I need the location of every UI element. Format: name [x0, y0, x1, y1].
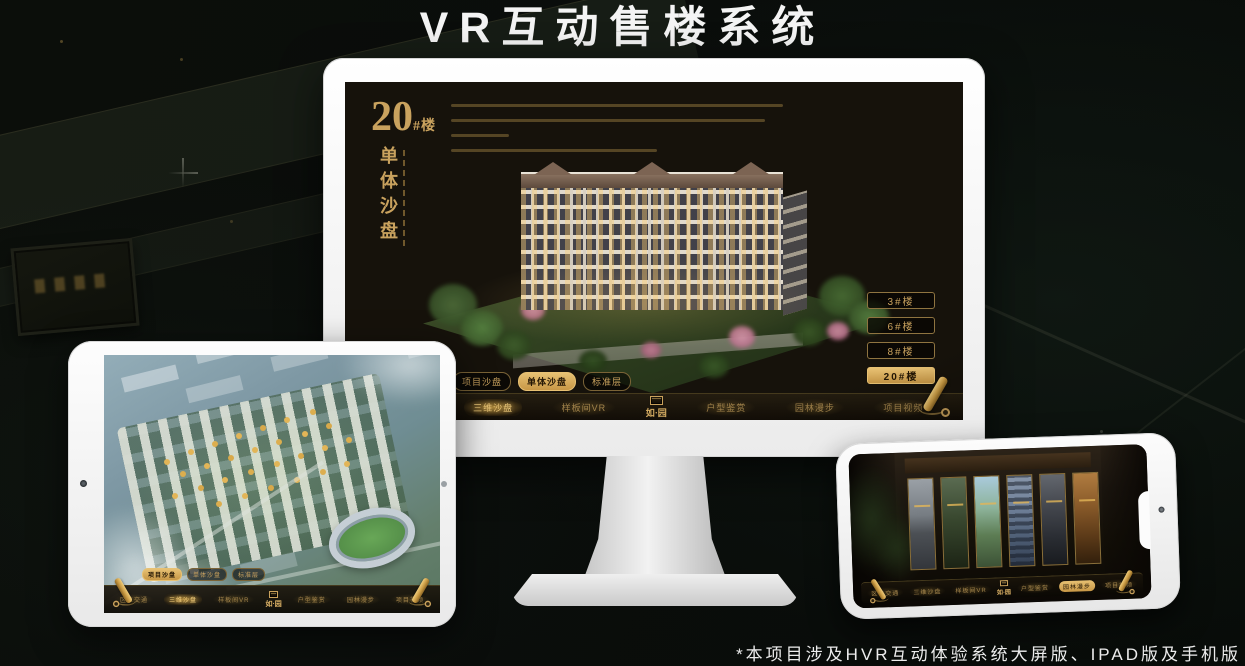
scroll-icon[interactable]	[919, 373, 953, 419]
scroll-icon[interactable]	[409, 575, 433, 608]
nav-item-3d-sandbox[interactable]: 三维沙盘	[909, 585, 945, 597]
footnote-text: *本项目涉及HVR互动体验系统大屏版、IPAD版及手机版	[736, 640, 1241, 665]
tab-standard-floor[interactable]: 标准层	[232, 568, 265, 581]
tree	[699, 354, 729, 378]
scroll-icon[interactable]	[867, 576, 888, 604]
mode-tabs: 项目沙盘 单体沙盘 标准层	[453, 372, 631, 391]
description-text-line	[451, 119, 765, 122]
phone-notch	[1138, 491, 1151, 549]
nav-item-unit-plans[interactable]: 户型鉴赏	[697, 399, 755, 416]
nav-item-showroom-vr[interactable]: 样板间VR	[213, 594, 254, 605]
tab-project-sandbox[interactable]: 项目沙盘	[142, 568, 182, 581]
block-number-suffix: #楼	[413, 119, 436, 134]
phone-device: 区位交通 三维沙盘 样板间VR 如·园 户型鉴赏 园林漫步 项目视频	[835, 432, 1181, 620]
block-number-text: 20	[371, 94, 413, 140]
tab-project-sandbox[interactable]: 项目沙盘	[453, 372, 511, 391]
nav-item-unit-plans[interactable]: 户型鉴赏	[293, 594, 331, 605]
tree	[579, 350, 607, 372]
building-number-markers[interactable]	[164, 459, 170, 465]
tab-standard-floor[interactable]: 标准层	[583, 372, 631, 391]
tree	[497, 330, 531, 360]
gallery-panel[interactable]	[973, 475, 1002, 568]
flower-shrub	[729, 326, 755, 348]
tablet-device: 项目沙盘 单体沙盘 标准层 区位交通 三维沙盘 样板间VR 如·园 户型鉴赏 园…	[68, 341, 456, 627]
logo-emblem-icon	[1000, 580, 1008, 586]
scroll-icon[interactable]	[1115, 568, 1136, 596]
floor-button-6[interactable]: 6#楼	[867, 317, 935, 334]
nav-item-3d-sandbox[interactable]: 三维沙盘	[464, 399, 522, 416]
scroll-icon[interactable]	[111, 575, 135, 608]
building-end-face	[783, 191, 807, 316]
gallery-panel[interactable]	[1006, 474, 1035, 567]
tab-single-sandbox[interactable]: 单体沙盘	[518, 372, 576, 391]
compass-star-icon	[168, 158, 198, 188]
nav-item-garden-walk[interactable]: 园林漫步	[786, 399, 844, 416]
nav-item-garden-walk[interactable]: 园林漫步	[1059, 580, 1095, 592]
gallery-panel[interactable]	[907, 478, 936, 571]
award-plaque	[10, 238, 139, 336]
brand-logo: 如·园	[997, 580, 1012, 596]
nav-item-showroom-vr[interactable]: 样板间VR	[951, 583, 991, 595]
logo-text: 如·园	[265, 599, 281, 609]
nav-item-showroom-vr[interactable]: 样板间VR	[553, 399, 616, 416]
gallery-panel[interactable]	[1039, 473, 1068, 566]
nav-item-garden-walk[interactable]: 园林漫步	[342, 594, 380, 605]
floor-selector: 3#楼 6#楼 8#楼 20#楼	[867, 292, 935, 384]
block-title-vertical: 单体沙盘	[375, 146, 401, 246]
flower-shrub	[641, 342, 661, 358]
logo-emblem-icon	[650, 396, 663, 405]
page-title: VR互动售楼系统	[0, 0, 1245, 56]
tab-single-sandbox[interactable]: 单体沙盘	[187, 568, 227, 581]
building-3d-model[interactable]	[403, 138, 903, 404]
brand-logo: 如·园	[265, 591, 281, 609]
monitor-stand-base	[512, 574, 798, 606]
logo-text: 如·园	[646, 406, 667, 419]
block-number: 20#楼	[371, 96, 436, 138]
nav-item-3d-sandbox[interactable]: 三维沙盘	[164, 594, 202, 605]
phone-screen: 区位交通 三维沙盘 样板间VR 如·园 户型鉴赏 园林漫步 项目视频	[848, 444, 1151, 608]
camera-icon	[80, 480, 87, 487]
nav-item-unit-plans[interactable]: 户型鉴赏	[1017, 581, 1053, 593]
building-facade	[521, 188, 783, 310]
poster-canvas: VR互动售楼系统 20#楼 单体沙盘	[0, 0, 1245, 666]
logo-text: 如·园	[997, 587, 1011, 596]
tablet-screen: 项目沙盘 单体沙盘 标准层 区位交通 三维沙盘 样板间VR 如·园 户型鉴赏 园…	[104, 355, 440, 613]
tree	[793, 318, 825, 346]
home-button[interactable]	[441, 481, 447, 487]
residential-building	[521, 164, 783, 316]
gallery-panel[interactable]	[940, 476, 969, 569]
flower-shrub	[827, 322, 849, 340]
bottom-navbar: 区位交通 三维沙盘 样板间VR 如·园 户型鉴赏 园林漫步 项目视频	[104, 585, 440, 613]
brand-logo: 如·园	[646, 396, 667, 419]
logo-emblem-icon	[269, 591, 278, 598]
floor-button-3[interactable]: 3#楼	[867, 292, 935, 309]
description-text-line	[451, 104, 783, 107]
monitor-stand-neck	[584, 456, 726, 578]
floor-button-8[interactable]: 8#楼	[867, 342, 935, 359]
gallery-panels	[907, 472, 1101, 571]
mode-tabs: 项目沙盘 单体沙盘 标准层	[142, 568, 265, 581]
gallery-panel[interactable]	[1072, 472, 1101, 565]
camera-icon	[1158, 507, 1164, 513]
description-text-line	[451, 134, 509, 137]
